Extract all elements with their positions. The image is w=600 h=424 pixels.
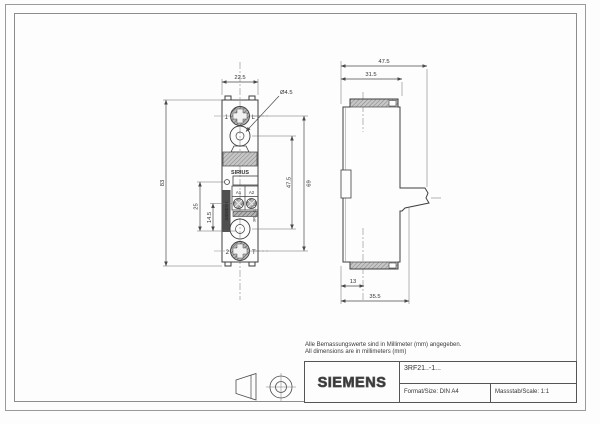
dim-width-label: 22.5 bbox=[234, 75, 245, 81]
dim-height-label: 83 bbox=[160, 180, 166, 186]
drawing-sheet: 1 L SIRIUS A1 A2 bbox=[0, 0, 600, 424]
status-window bbox=[225, 176, 259, 185]
dim-offset25-label: 25 bbox=[194, 203, 200, 209]
title-block-model: 3RF21..-1... bbox=[399, 362, 576, 384]
mount-tab bbox=[249, 262, 255, 266]
screw-terminal-1 bbox=[231, 107, 250, 126]
dim-hole-diameter-label: Ø4.5 bbox=[280, 90, 293, 96]
dim-offset145-label: 14.5 bbox=[207, 212, 213, 223]
siemens-logo: SIEMENS bbox=[307, 371, 397, 393]
cone-frustum-icon bbox=[236, 374, 256, 401]
dimension-notes: Alle Bemassungswerte sind in Millimeter … bbox=[305, 342, 461, 356]
din-rail-latch bbox=[341, 170, 351, 198]
screw-terminal-2 bbox=[231, 242, 250, 261]
side-view: 47.5 31.5 13 35.5 bbox=[341, 59, 441, 304]
terminal-cover-bar bbox=[233, 212, 257, 217]
mount-tab bbox=[225, 96, 231, 100]
title-block-format: Format/Size: DIN A4 bbox=[399, 384, 490, 402]
side-profile-outline bbox=[343, 99, 429, 269]
title-block-brand-cell: SIEMENS bbox=[305, 362, 399, 402]
mount-tab bbox=[225, 262, 231, 266]
dim-hole-spacing-label: 47.5 bbox=[287, 177, 293, 188]
note-line-de: Alle Bemassungswerte sind in Millimeter … bbox=[305, 342, 461, 349]
siemens-logo-text: SIEMENS bbox=[318, 375, 387, 391]
brand-vertical-label: SIEMENS bbox=[224, 201, 229, 220]
dim-depth-body-label: 31.5 bbox=[365, 72, 376, 78]
terminal-a1-label: A1 bbox=[236, 190, 242, 195]
rating-label-plate bbox=[223, 152, 257, 166]
projection-symbol bbox=[236, 373, 296, 401]
dim-depth-total-label: 47.5 bbox=[378, 59, 389, 65]
mount-tab bbox=[249, 96, 255, 100]
title-block-scale: Massstab/Scale: 1:1 bbox=[490, 384, 576, 402]
dim-screw-spacing-label: 69 bbox=[307, 180, 313, 186]
brand-strip-vertical: SIEMENS bbox=[222, 190, 231, 232]
product-line-label: SIRIUS bbox=[231, 170, 249, 176]
dim-foot-label: 13 bbox=[350, 279, 356, 285]
note-line-en: All dimensions are in millimeters (mm) bbox=[305, 349, 461, 356]
terminal-a2-label: A2 bbox=[249, 190, 255, 195]
bottom-flange-notch bbox=[389, 263, 396, 268]
led-indicator bbox=[225, 180, 230, 185]
title-block: SIEMENS 3RF21..-1... Format/Size: DIN A4… bbox=[304, 361, 577, 403]
hole-leader-line bbox=[246, 96, 279, 132]
front-view: 1 L SIRIUS A1 A2 bbox=[160, 62, 313, 300]
dim-depth-base-label: 35.5 bbox=[369, 294, 380, 300]
top-flange-notch bbox=[389, 101, 396, 107]
